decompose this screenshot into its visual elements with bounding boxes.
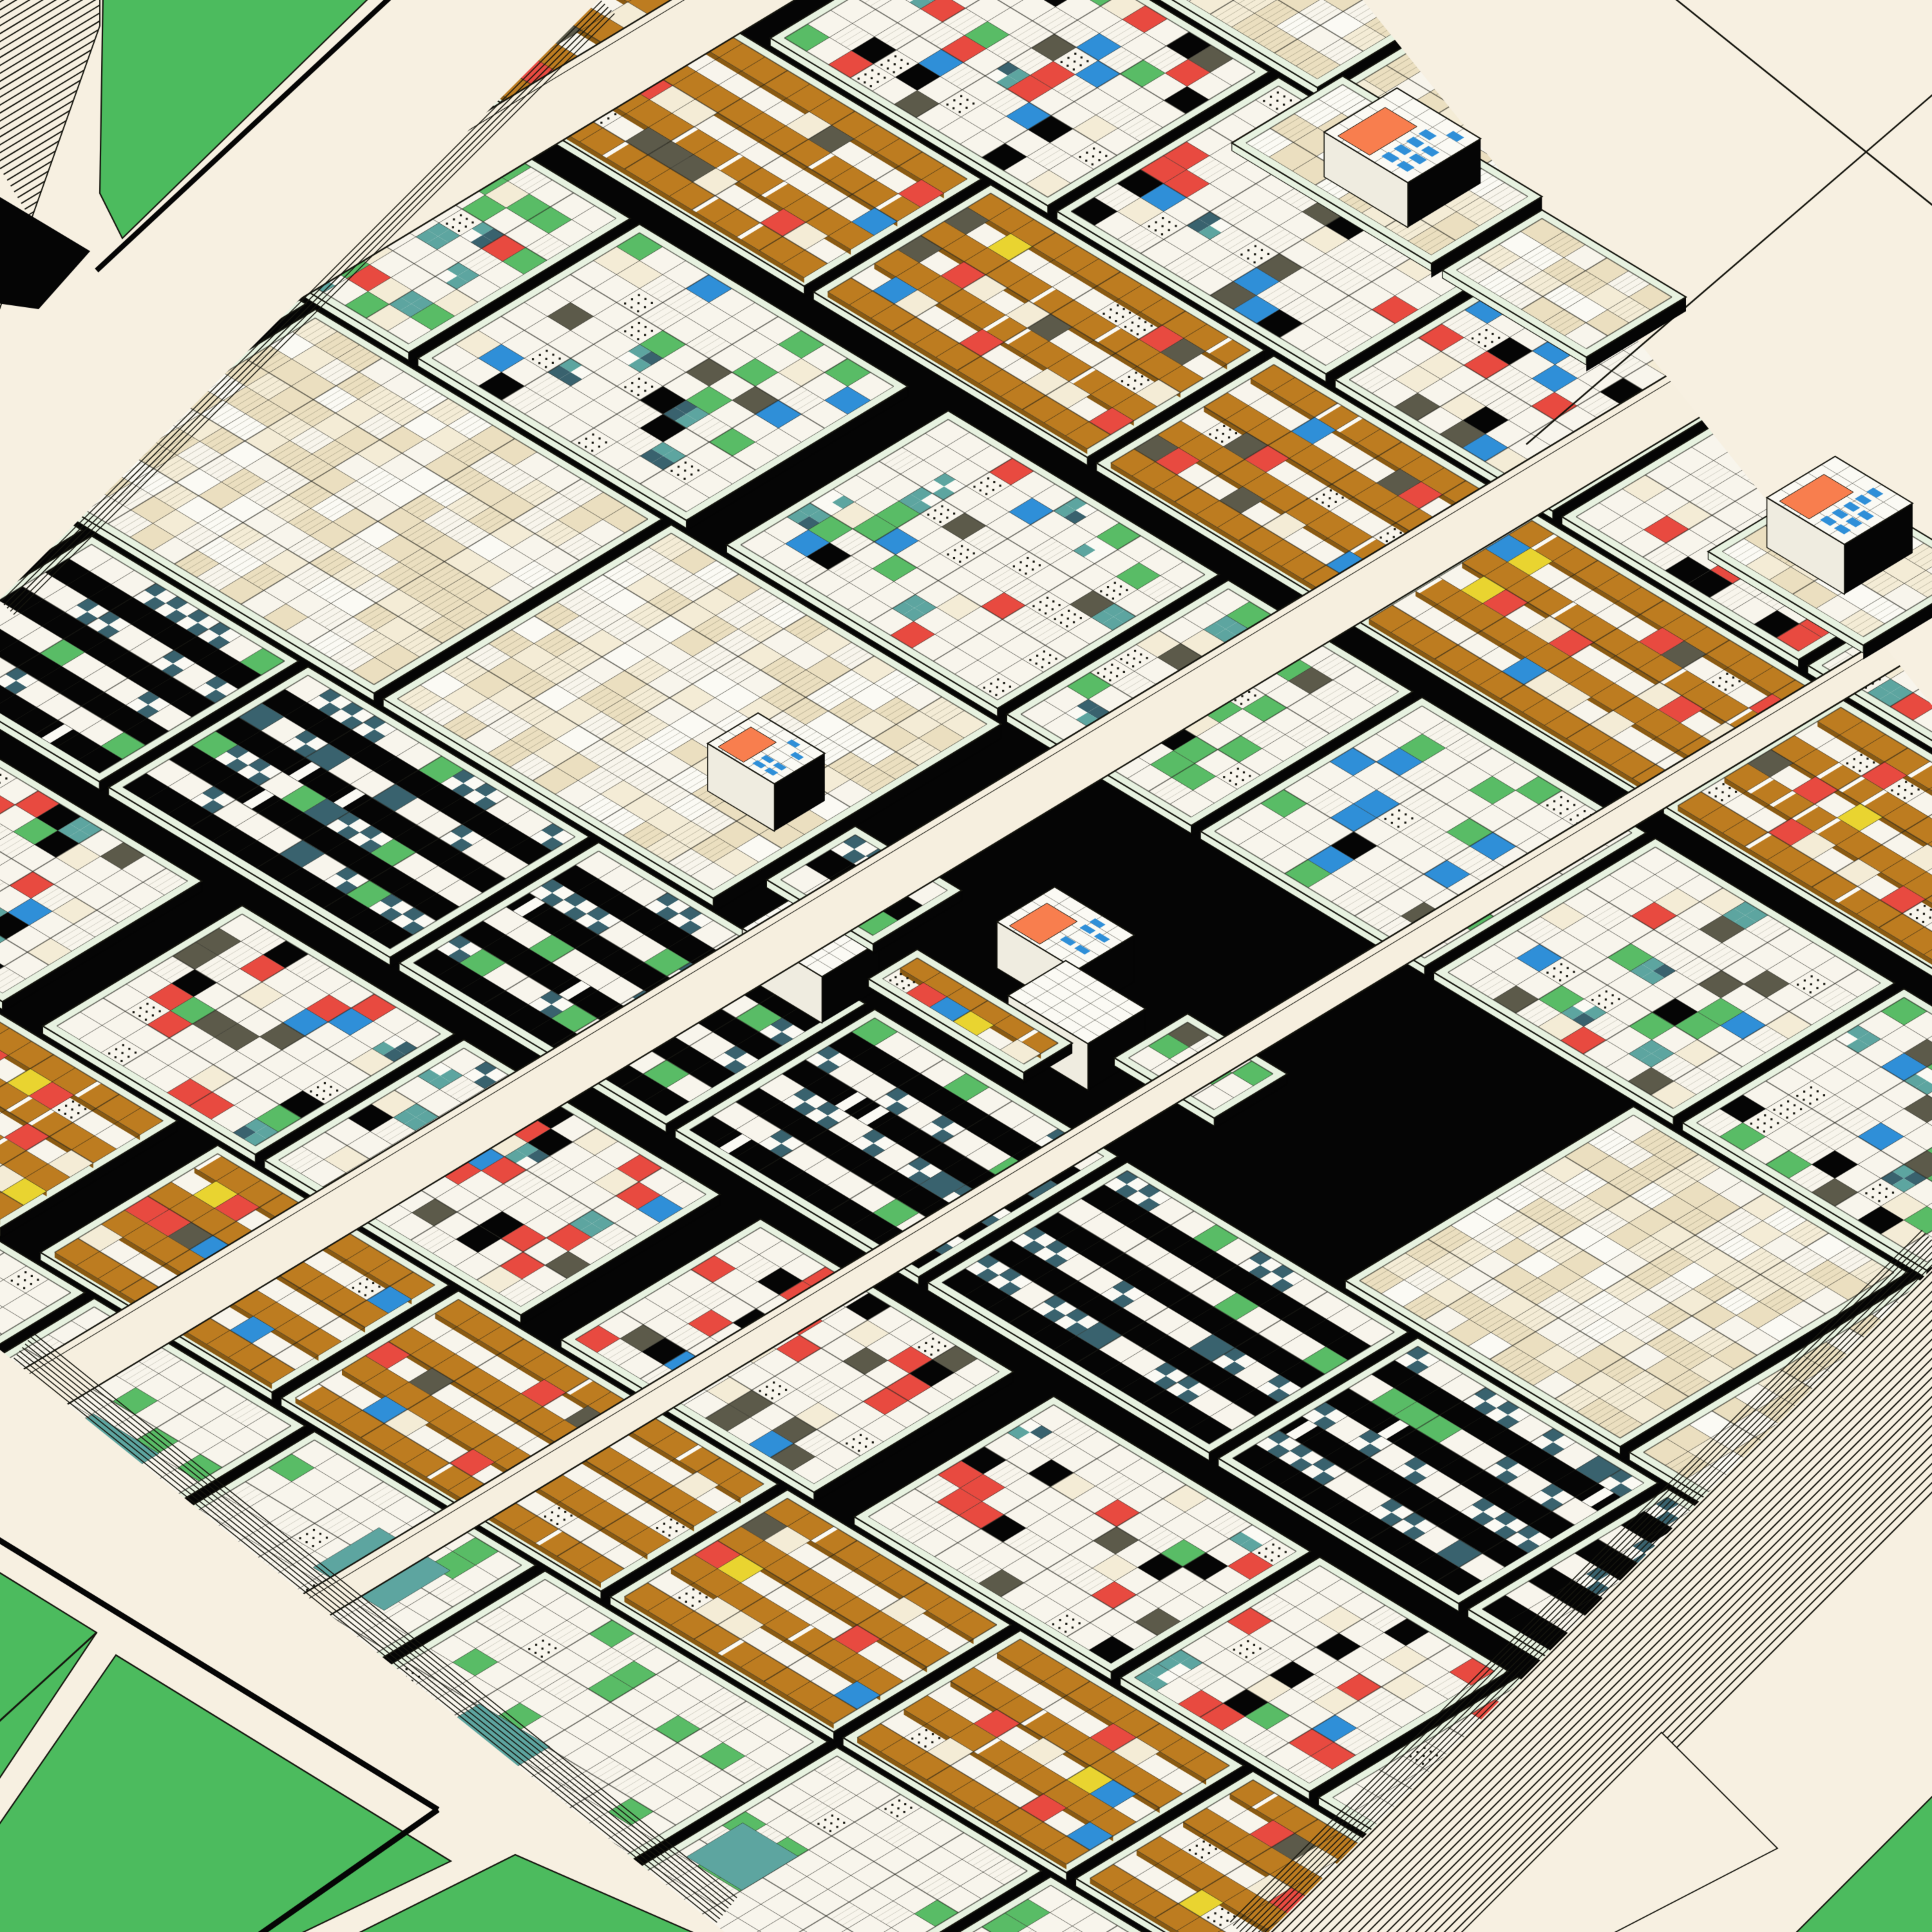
isometric-city-canvas xyxy=(0,0,1932,1932)
artwork-root xyxy=(0,0,1932,1932)
